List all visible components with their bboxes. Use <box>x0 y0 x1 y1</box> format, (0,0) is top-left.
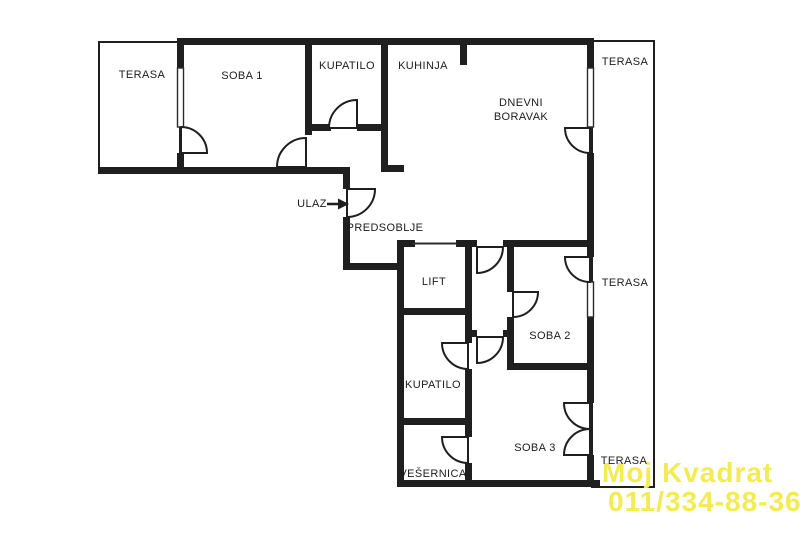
room-label-terasa-right-bottom: TERASA <box>601 455 647 467</box>
room-label-terasa-right-middle: TERASA <box>602 277 648 289</box>
door-arc-terasa-soba1 <box>181 127 207 153</box>
door-arc-soba3-terasa-upper <box>564 403 590 429</box>
wall <box>460 38 467 65</box>
wall <box>305 38 312 135</box>
room-label-kupatilo-bottom: KUPATILO <box>405 379 461 391</box>
watermark-phone: 011/334-88-36 <box>608 488 800 516</box>
floorplan: Moj Kvadrat 011/334-88-36 TERASA SOBA 1 … <box>0 0 800 533</box>
room-label-kuhinja: KUHINJA <box>398 60 448 72</box>
room-label-predsoblje: PREDSOBLJE <box>347 222 424 234</box>
wall <box>472 330 477 337</box>
window-dnevni-terasa <box>588 68 594 127</box>
room-label-kupatilo-top: KUPATILO <box>319 60 375 72</box>
door-arc-soba3-nook <box>477 337 503 363</box>
terrace-outline-right <box>592 41 654 487</box>
window-terasa-soba1 <box>178 68 184 127</box>
room-label-terasa-top-left: TERASA <box>119 69 165 81</box>
room-label-vesernica: VEŠERNICA <box>399 468 466 480</box>
door-arc-dnevni-terasa <box>565 128 590 153</box>
door-arc-kupatilo-bottom <box>442 343 468 369</box>
wall <box>98 167 348 174</box>
room-label-dnevni-boravak: DNEVNI BORAVAK <box>480 96 562 124</box>
wall <box>177 153 184 174</box>
wall <box>507 317 514 370</box>
wall <box>587 38 594 68</box>
room-label-terasa-right-top: TERASA <box>602 56 648 68</box>
window-soba2-terasa <box>588 282 594 317</box>
entrance-label: ULAZ <box>297 198 327 210</box>
door-arc-soba2-entry <box>513 292 538 317</box>
wall <box>465 240 472 343</box>
wall <box>503 240 594 247</box>
door-arc-vesernica <box>442 437 468 463</box>
door-arc-soba2-terasa <box>565 257 590 282</box>
wall <box>397 308 472 315</box>
wall <box>343 263 404 270</box>
terrace-outline-top-left <box>99 42 180 173</box>
wall <box>397 418 472 425</box>
wall <box>507 240 514 292</box>
door-arc-ulaz <box>347 189 375 217</box>
room-label-soba-2: SOBA 2 <box>529 330 571 342</box>
wall <box>381 38 388 172</box>
wall <box>465 369 472 437</box>
wall <box>587 317 594 403</box>
door-arc-soba3-terasa-lower <box>564 429 590 455</box>
door-arc-corridor-top <box>477 247 503 273</box>
wall <box>507 363 594 370</box>
wall <box>397 480 600 487</box>
door-arc-kupatilo-top <box>329 100 357 128</box>
door-arc-soba1 <box>277 138 306 167</box>
room-label-soba-1: SOBA 1 <box>221 70 263 82</box>
wall <box>587 455 594 487</box>
wall <box>177 38 184 68</box>
room-label-soba-3: SOBA 3 <box>514 442 556 454</box>
room-label-lift: LIFT <box>422 276 446 288</box>
wall <box>343 167 350 189</box>
wall <box>587 153 594 257</box>
wall <box>397 240 404 487</box>
